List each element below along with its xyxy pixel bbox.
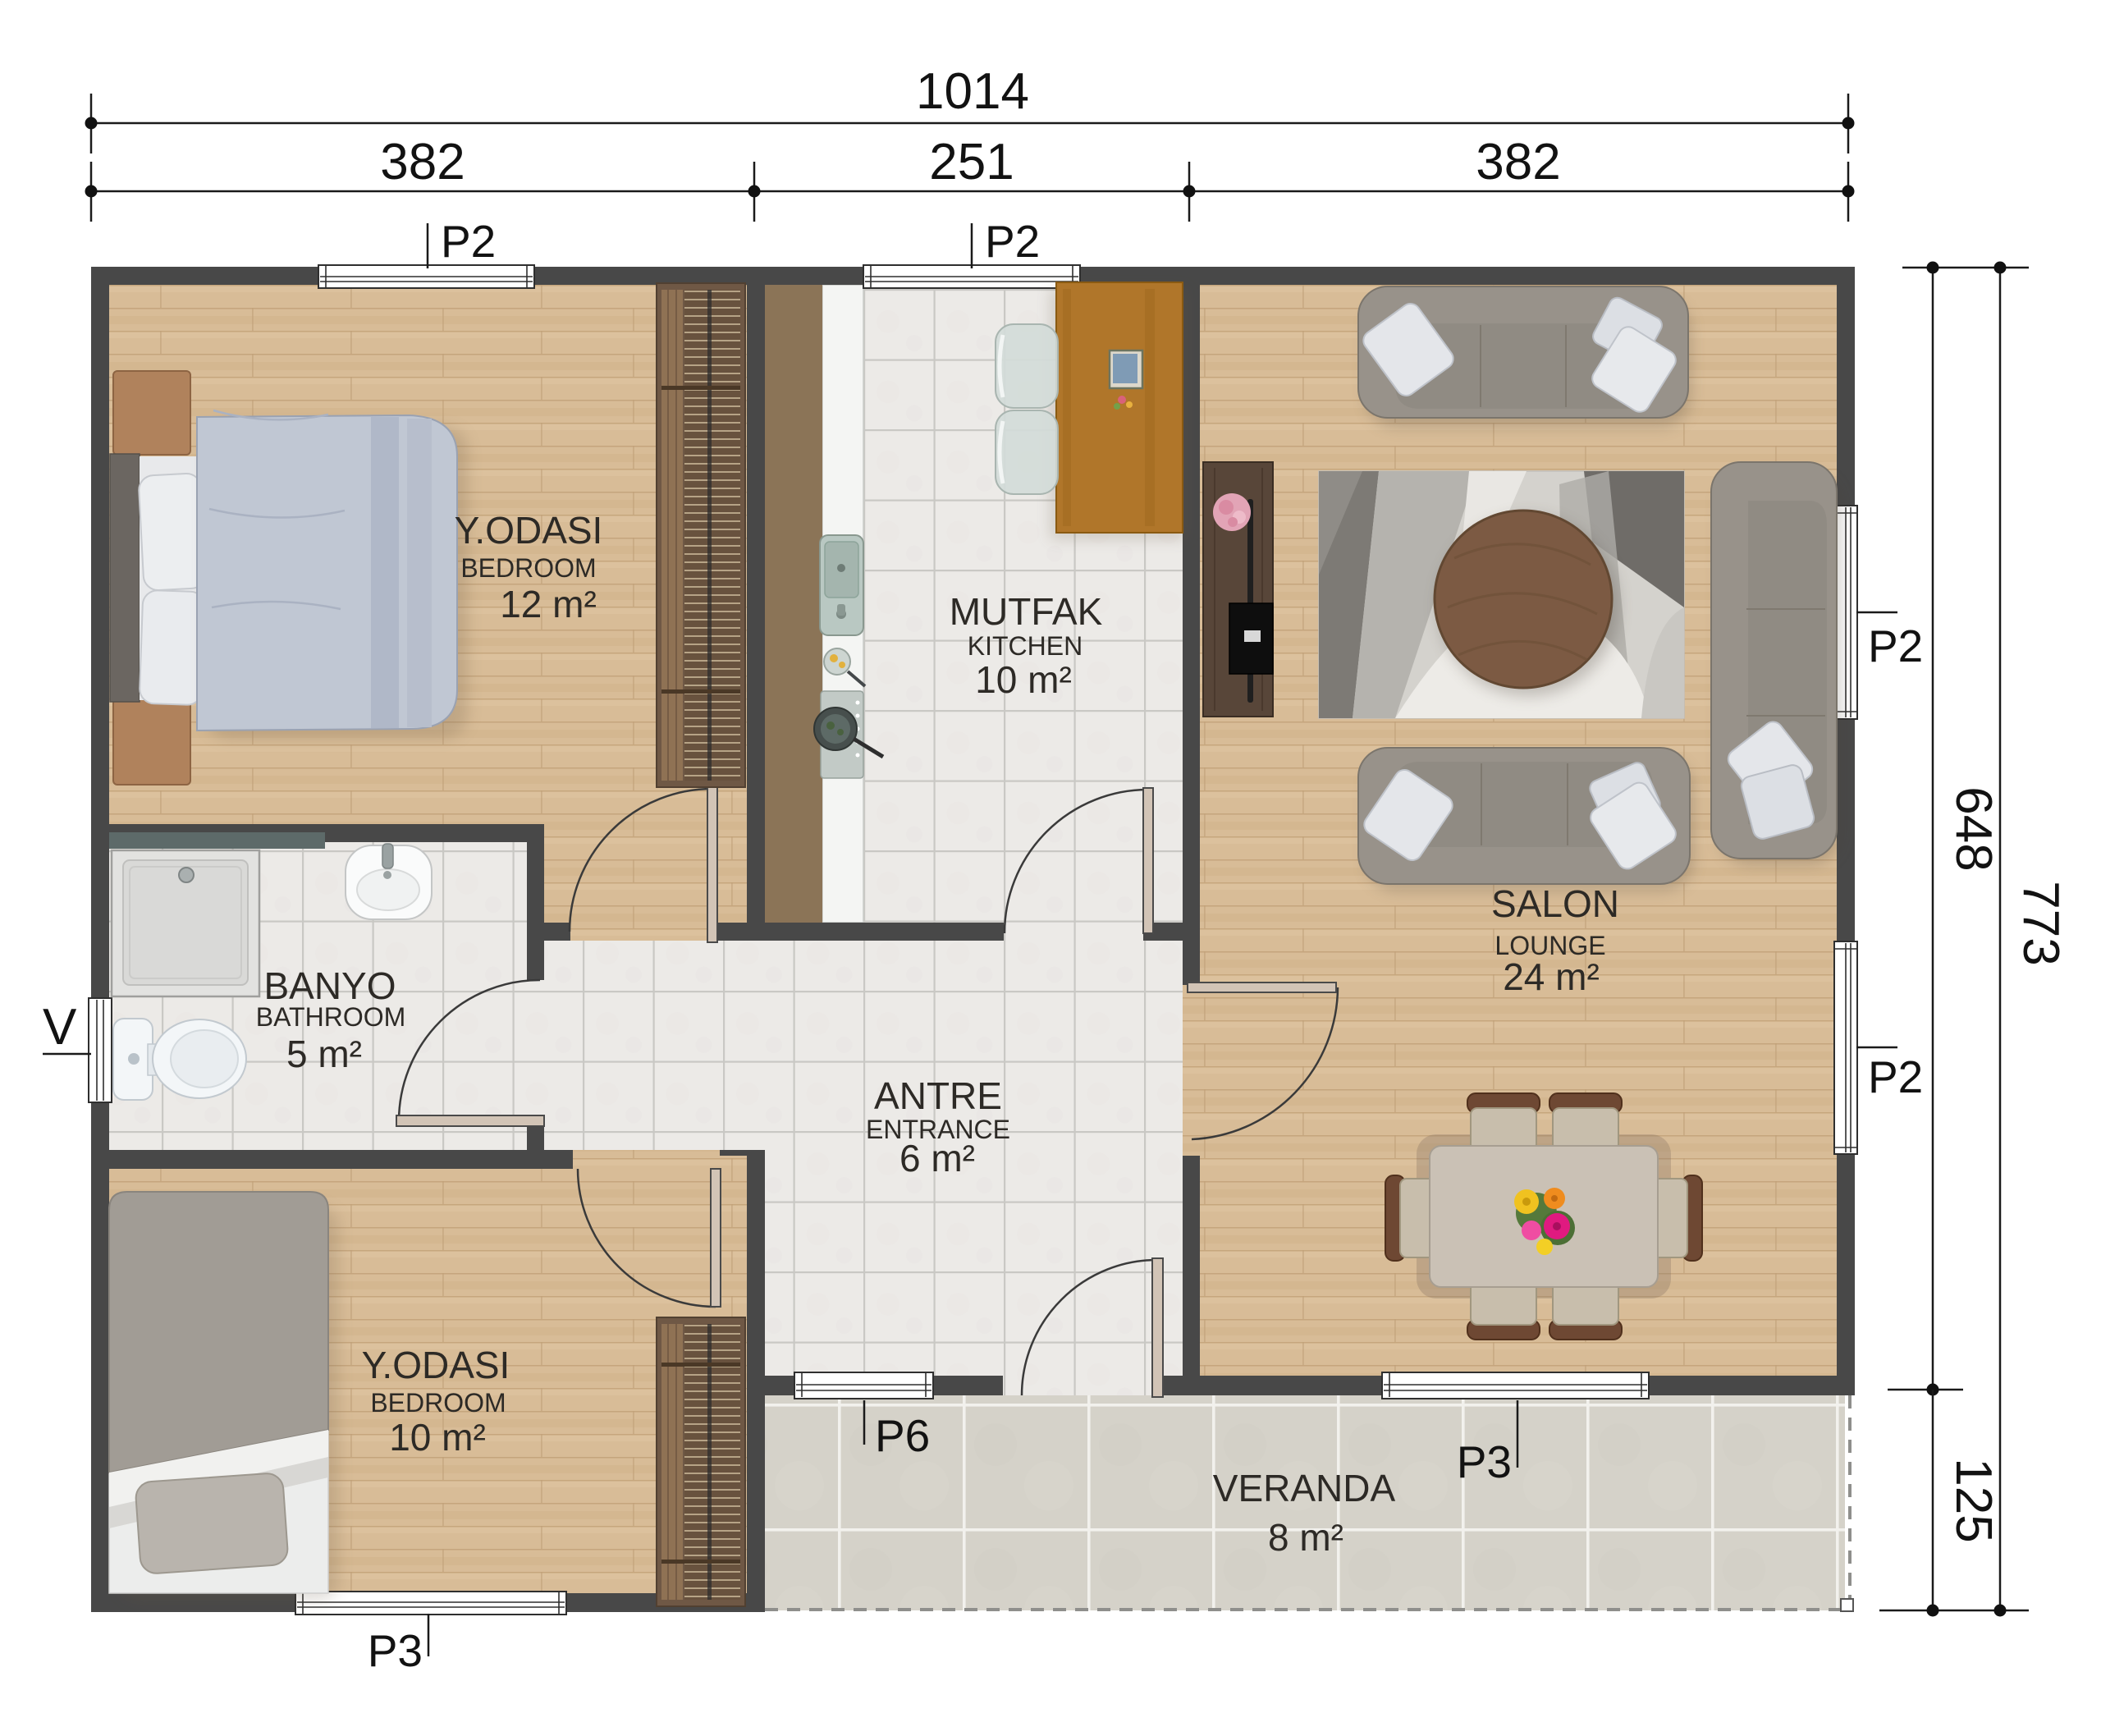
svg-text:10 m²: 10 m² bbox=[975, 658, 1072, 701]
svg-text:24 m²: 24 m² bbox=[1503, 955, 1600, 998]
svg-text:P2: P2 bbox=[1868, 1051, 1923, 1102]
svg-text:1014: 1014 bbox=[916, 63, 1029, 120]
svg-text:10 m²: 10 m² bbox=[389, 1416, 486, 1459]
svg-text:P2: P2 bbox=[985, 216, 1040, 267]
svg-text:5 m²: 5 m² bbox=[286, 1033, 362, 1075]
svg-text:12 m²: 12 m² bbox=[500, 583, 597, 625]
svg-text:VERANDA: VERANDA bbox=[1213, 1467, 1396, 1509]
svg-text:125: 125 bbox=[1945, 1458, 2002, 1542]
svg-text:251: 251 bbox=[929, 134, 1014, 190]
svg-text:SALON: SALON bbox=[1491, 882, 1619, 925]
svg-text:382: 382 bbox=[380, 134, 465, 190]
svg-text:MUTFAK: MUTFAK bbox=[950, 590, 1103, 633]
svg-text:BANYO: BANYO bbox=[263, 964, 396, 1007]
svg-text:KITCHEN: KITCHEN bbox=[968, 631, 1083, 661]
svg-text:P3: P3 bbox=[1457, 1436, 1512, 1487]
svg-text:773: 773 bbox=[2012, 881, 2069, 965]
svg-text:BEDROOM: BEDROOM bbox=[370, 1388, 506, 1418]
svg-text:Y.ODASI: Y.ODASI bbox=[455, 509, 603, 552]
svg-text:8 m²: 8 m² bbox=[1268, 1516, 1343, 1559]
svg-text:6 m²: 6 m² bbox=[899, 1137, 975, 1179]
svg-text:648: 648 bbox=[1945, 786, 2002, 871]
svg-text:P3: P3 bbox=[368, 1625, 423, 1676]
svg-text:BATHROOM: BATHROOM bbox=[256, 1002, 406, 1032]
svg-text:ANTRE: ANTRE bbox=[874, 1074, 1002, 1117]
svg-text:382: 382 bbox=[1476, 134, 1560, 190]
svg-text:P2: P2 bbox=[441, 216, 496, 267]
svg-text:P2: P2 bbox=[1868, 621, 1923, 671]
svg-text:V: V bbox=[43, 999, 77, 1056]
svg-text:P6: P6 bbox=[875, 1410, 930, 1461]
svg-text:Y.ODASI: Y.ODASI bbox=[362, 1344, 510, 1386]
svg-text:BEDROOM: BEDROOM bbox=[460, 553, 596, 583]
